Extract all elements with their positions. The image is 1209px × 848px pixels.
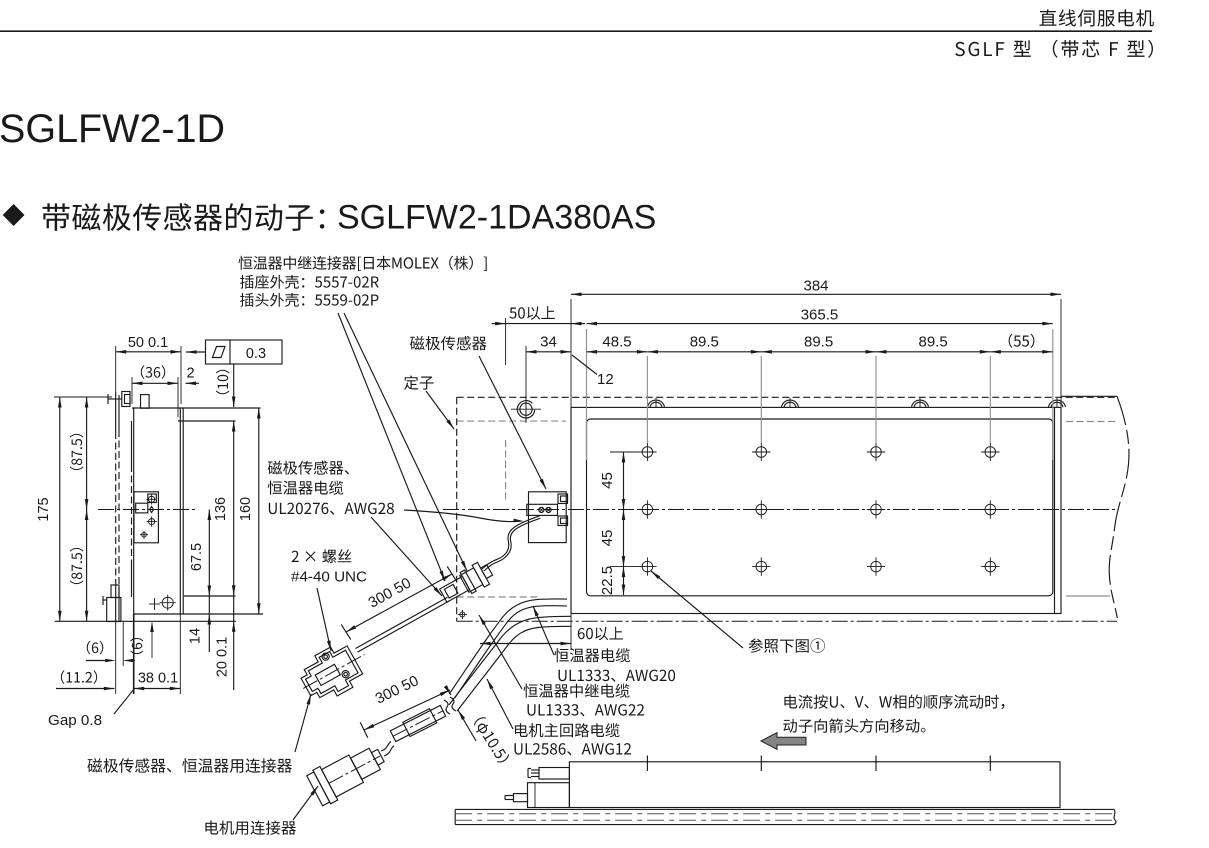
svg-text:22.5: 22.5	[599, 566, 616, 595]
svg-text:Gap 0.8: Gap 0.8	[48, 712, 102, 729]
svg-text:300 50: 300 50	[373, 672, 422, 707]
svg-text:38 0.1: 38 0.1	[138, 671, 178, 687]
svg-text:175: 175	[36, 497, 52, 521]
svg-text:20 0.1: 20 0.1	[215, 637, 231, 677]
svg-text:365.5: 365.5	[801, 307, 839, 324]
svg-text:48.5: 48.5	[602, 334, 631, 351]
svg-text:0.3: 0.3	[246, 346, 266, 362]
svg-text:89.5: 89.5	[804, 334, 833, 351]
svg-text:45: 45	[599, 530, 616, 547]
svg-text:SGLFW2-1D: SGLFW2-1D	[0, 107, 225, 151]
svg-text:89.5: 89.5	[918, 334, 947, 351]
svg-text:300 50: 300 50	[366, 575, 414, 612]
svg-text:50 0.1: 50 0.1	[128, 335, 168, 351]
svg-text:384: 384	[803, 278, 828, 295]
svg-text:67.5: 67.5	[189, 543, 205, 571]
svg-text:#4-40 UNC: #4-40 UNC	[291, 569, 367, 586]
svg-text:160: 160	[238, 497, 254, 521]
svg-text:12: 12	[597, 371, 614, 388]
svg-text:2: 2	[186, 366, 194, 382]
svg-text:89.5: 89.5	[690, 334, 719, 351]
svg-text:SGLFW2-1DA380AS: SGLFW2-1DA380AS	[337, 199, 656, 237]
svg-text:136: 136	[213, 497, 229, 521]
svg-text:14: 14	[188, 628, 204, 644]
svg-text:34: 34	[540, 334, 557, 351]
svg-text:45: 45	[599, 472, 616, 489]
